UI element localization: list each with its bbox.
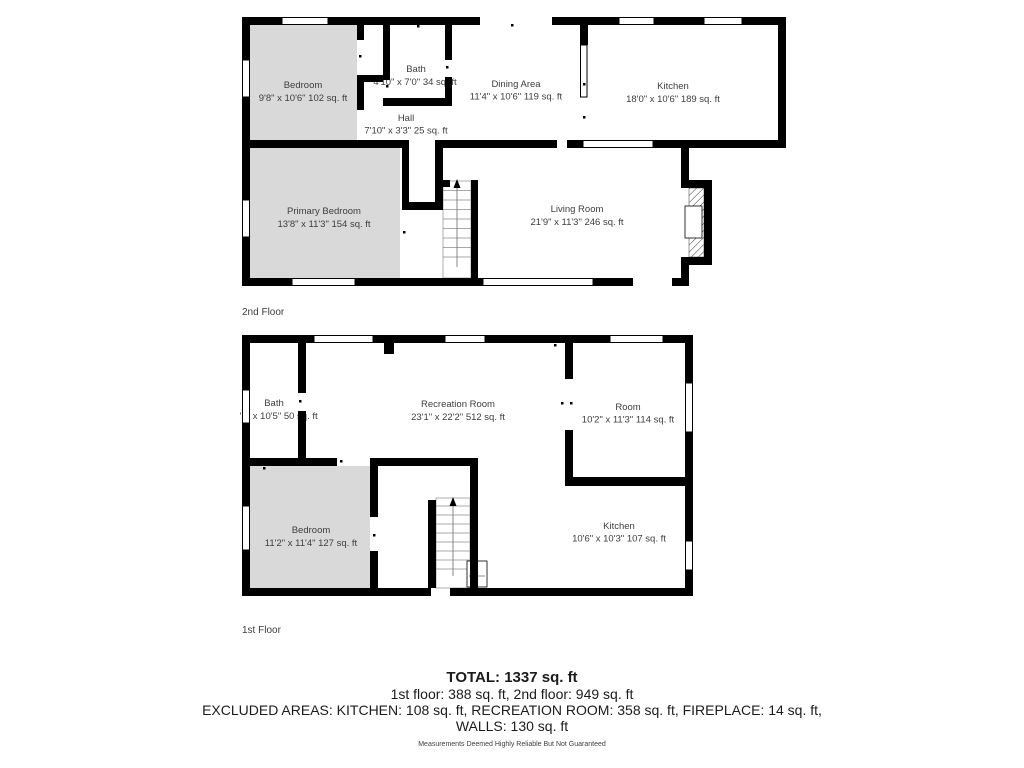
room-label-primary-dims: 13'8" x 11'3" 154 sq. ft (277, 219, 370, 230)
window-icon (704, 18, 742, 25)
room-label-bedroom-name: Bedroom (284, 80, 323, 91)
summary-total: TOTAL: 1337 sq. ft (0, 670, 1024, 686)
room-label-hall-name: Hall (398, 113, 414, 124)
room-label-kitchen-name: Kitchen (657, 81, 689, 92)
window-icon (243, 200, 250, 237)
room-label-bath-name: Bath (264, 398, 284, 409)
window-icon (314, 336, 373, 343)
room-label-kitchen-dims: 18'0" x 10'6" 189 sq. ft (626, 94, 720, 105)
room-label-kitchen-dims: 10'6" x 10'3" 107 sq. ft (572, 534, 666, 545)
cased-opening-icon (581, 45, 588, 97)
fireplace-icon (685, 188, 704, 257)
room-label-living-dims: 21'9" x 11'3" 246 sq. ft (530, 217, 623, 228)
room-label-recreation-dims: 23'1" x 22'2" 512 sq. ft (411, 412, 505, 423)
window-icon (243, 506, 250, 550)
room-label-room-dims: 10'2" x 11'3" 114 sq. ft (582, 415, 675, 426)
summary-walls: WALLS: 130 sq. ft (0, 718, 1024, 734)
room-label-recreation-name: Recreation Room (421, 399, 495, 410)
summary-floors: 1st floor: 388 sq. ft, 2nd floor: 949 sq… (0, 686, 1024, 702)
window-icon (292, 279, 355, 286)
room-label-living-name: Living Room (551, 204, 604, 215)
window-icon (282, 18, 328, 25)
second-floor-plan: Bedroom 9'8" x 10'6" 102 sq. ft Bath 4'1… (240, 15, 790, 290)
room-label-primary-name: Primary Bedroom (287, 206, 361, 217)
room-label-bedroom-name: Bedroom (292, 525, 331, 536)
room-label-dining-dims: 11'4" x 10'6" 119 sq. ft (470, 92, 563, 103)
window-icon (243, 60, 250, 97)
room-label-dining-name: Dining Area (491, 79, 541, 90)
room-label-bath-dims: 4'9" x 10'5" 50 sq. ft (240, 411, 318, 422)
window-icon (686, 383, 693, 432)
second-floor-label: 2nd Floor (242, 307, 284, 318)
room-label-bedroom-dims: 11'2" x 11'4" 127 sq. ft (265, 538, 358, 549)
window-icon (610, 336, 663, 343)
window-icon (619, 18, 654, 25)
window-icon (686, 541, 693, 570)
room-label-room-name: Room (615, 402, 640, 413)
door-opening (633, 278, 672, 286)
floor-plan-page: Bedroom 9'8" x 10'6" 102 sq. ft Bath 4'1… (0, 0, 1024, 768)
room-label-kitchen-name: Kitchen (603, 521, 635, 532)
window-icon (445, 336, 485, 343)
window-icon (583, 141, 653, 148)
window-icon (483, 279, 593, 286)
area-summary: TOTAL: 1337 sq. ft 1st floor: 388 sq. ft… (0, 670, 1024, 748)
room-label-hall-dims: 7'10" x 3'3" 25 sq. ft (364, 126, 448, 137)
room-label-bath-name: Bath (406, 64, 426, 75)
summary-excluded: EXCLUDED AREAS: KITCHEN: 108 sq. ft, REC… (0, 702, 1024, 718)
stairs-up-icon (443, 179, 471, 278)
summary-disclaimer: Measurements Deemed Highly Reliable But … (0, 741, 1024, 748)
stairs-up-icon (436, 497, 487, 588)
room-label-bedroom-dims: 9'8" x 10'6" 102 sq. ft (259, 93, 348, 104)
first-floor-label: 1st Floor (242, 625, 281, 636)
room-fills (250, 25, 400, 278)
window-icon (243, 390, 250, 423)
first-floor-plan: Bath 4'9" x 10'5" 50 sq. ft Recreation R… (240, 330, 700, 600)
